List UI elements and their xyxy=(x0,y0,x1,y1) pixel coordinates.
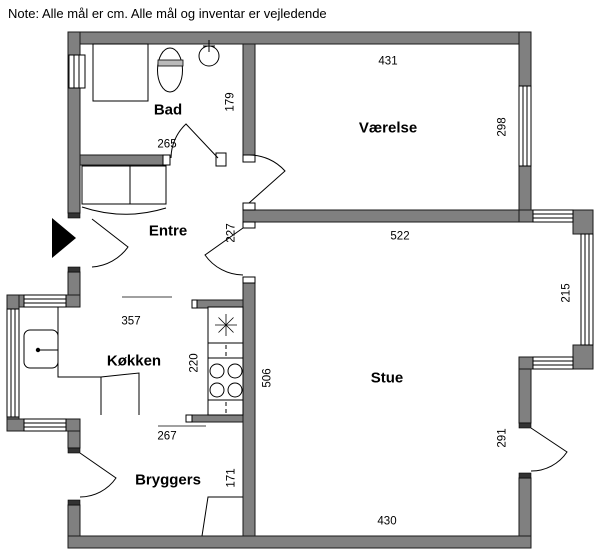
dim-522: 522 xyxy=(390,231,409,243)
floor-plan: Note: Alle mål er cm. Alle mål og invent… xyxy=(0,0,600,555)
dim-506: 506 xyxy=(262,368,274,387)
window-stue-bay-bottom xyxy=(533,357,573,369)
room-label-bryggers: Bryggers xyxy=(135,473,201,488)
dim-171: 171 xyxy=(226,468,238,487)
dim-357: 357 xyxy=(121,316,140,328)
wardrobe xyxy=(82,166,166,214)
shower xyxy=(93,44,148,101)
dim-179: 179 xyxy=(225,92,237,111)
room-label-entre: Entre xyxy=(149,224,187,239)
room-label-koekken: Køkken xyxy=(107,354,161,369)
window-koekken-bay-bottom xyxy=(24,419,66,431)
walls xyxy=(7,32,593,548)
entrance-arrow-icon xyxy=(52,218,76,258)
utility-appliance xyxy=(202,497,243,536)
floor-plan-drawing xyxy=(0,0,600,555)
room-label-stue: Stue xyxy=(371,371,404,386)
dim-298: 298 xyxy=(497,117,509,136)
window-vaerelse-right xyxy=(519,86,531,166)
dim-220: 220 xyxy=(189,353,201,372)
window-koekken-bay-left xyxy=(7,309,19,417)
kitchen-sink xyxy=(24,330,58,368)
dim-291: 291 xyxy=(497,428,509,447)
dim-265: 265 xyxy=(157,139,176,151)
dim-267: 267 xyxy=(157,431,176,443)
room-label-vaerelse: Værelse xyxy=(359,121,417,136)
room-label-bad: Bad xyxy=(154,103,182,118)
door-bad xyxy=(171,124,218,158)
door-entrance xyxy=(92,219,128,267)
windows xyxy=(7,55,593,431)
dim-430: 430 xyxy=(377,516,396,528)
dim-215: 215 xyxy=(561,283,573,302)
window-koekken-bay-top xyxy=(24,295,66,307)
plan-note: Note: Alle mål er cm. Alle mål og invent… xyxy=(8,6,327,21)
dim-227: 227 xyxy=(226,223,238,242)
door-terrace xyxy=(531,428,567,471)
window-stue-bay-right xyxy=(581,234,593,345)
door-bryggers xyxy=(80,453,116,497)
window-stue-bay-top xyxy=(533,210,573,222)
toilet xyxy=(158,48,184,92)
window-bad-left xyxy=(69,55,85,88)
dim-431: 431 xyxy=(378,56,397,68)
